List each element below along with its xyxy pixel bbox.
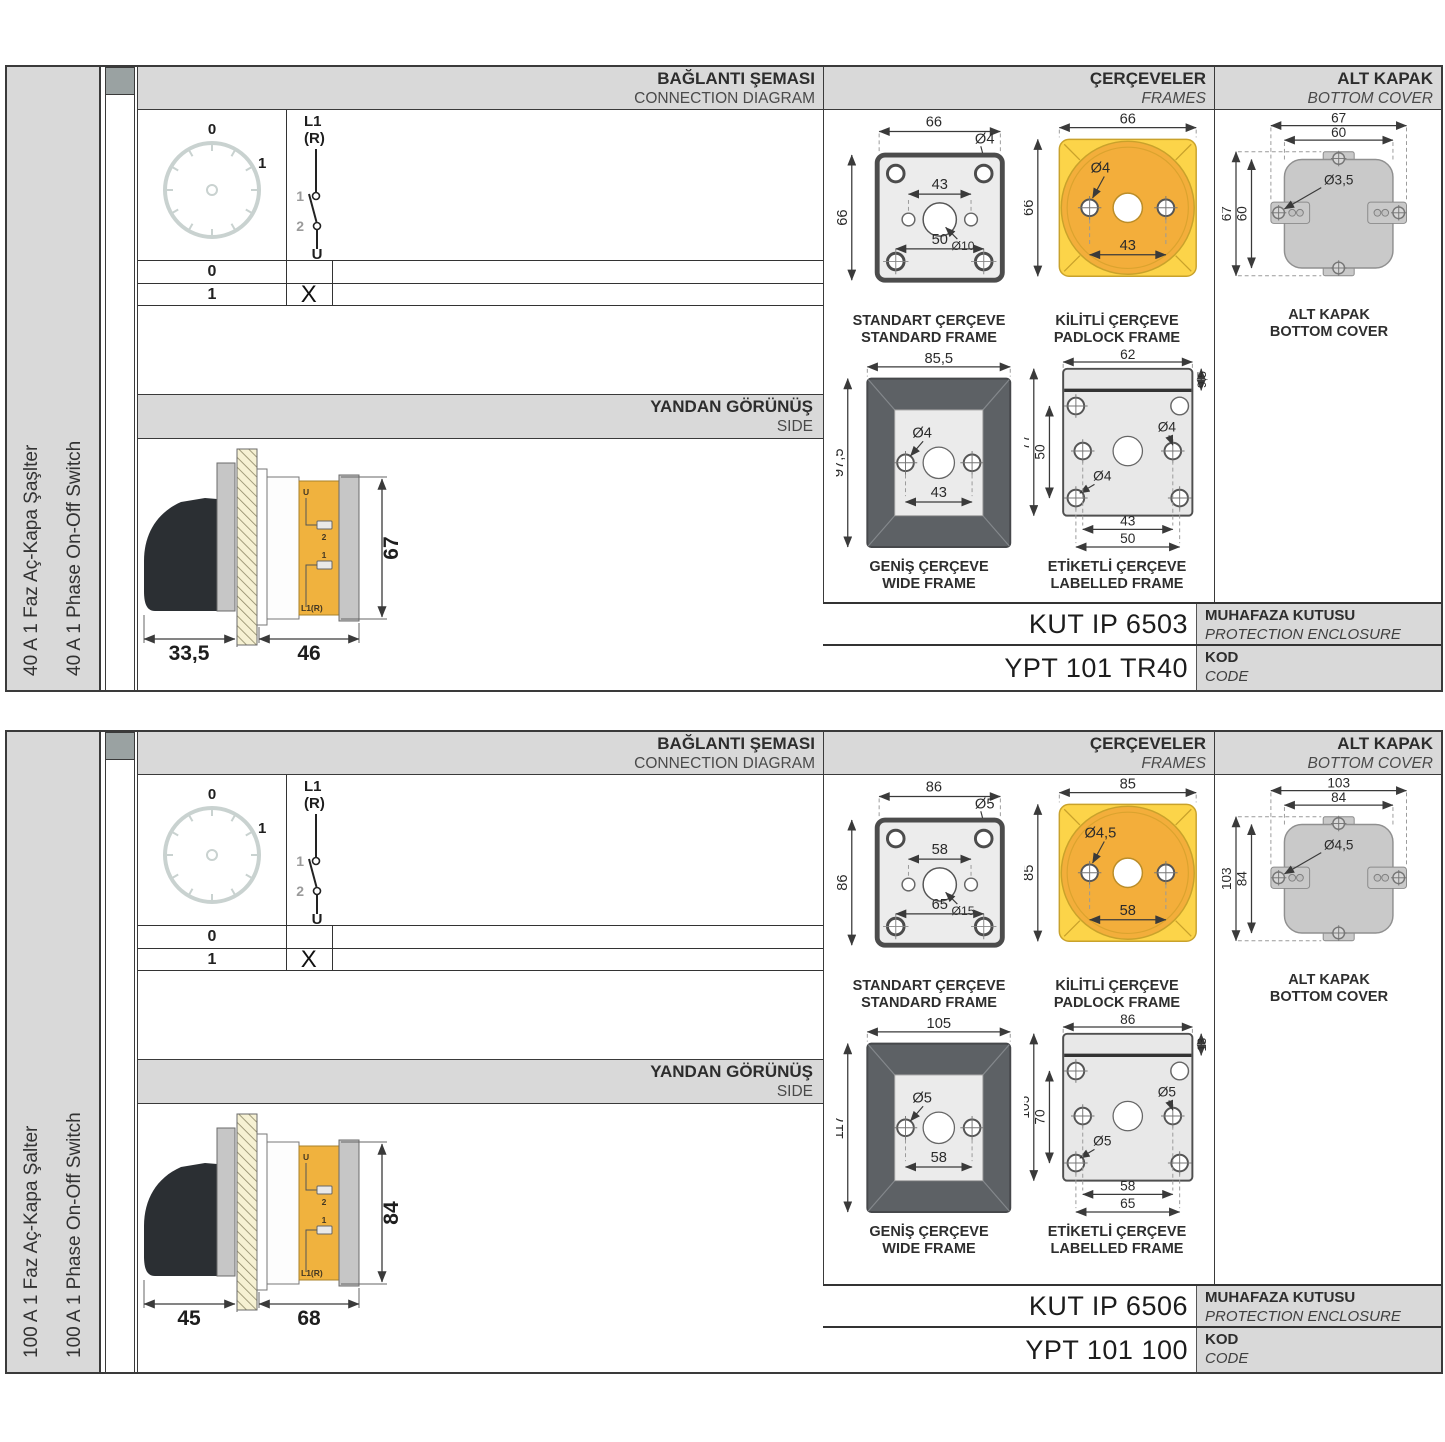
terminal-2: 2	[322, 1197, 327, 1207]
mounting-plate	[217, 1128, 235, 1276]
contact-2-label: 2	[296, 883, 304, 899]
dim-hole-spacing: 43	[931, 485, 947, 501]
dial-position-0: 0	[208, 121, 216, 138]
padlock-frame-caption: KİLİTLİ ÇERÇEVE PADLOCK FRAME	[1024, 313, 1210, 347]
dial-position-1: 1	[258, 155, 266, 172]
product-name-english: 40 A 1 Phase On-Off Switch	[53, 67, 97, 676]
terminal-lug-1	[317, 561, 332, 569]
panel-cross-section	[237, 1114, 257, 1310]
dim-height: 84	[380, 1201, 403, 1225]
header-bottom-cover: ALT KAPAK BOTTOM COVER	[1214, 67, 1441, 110]
position-mark: X	[286, 949, 333, 970]
switch-symbol: L1 (R) 1 2 U	[288, 775, 333, 925]
position-label: 1	[138, 284, 287, 305]
dim-depth-front: 33,5	[169, 642, 210, 663]
dim-height: 86	[836, 874, 851, 890]
position-mark	[286, 926, 333, 948]
dim-hole-spacing: 58	[1120, 903, 1136, 919]
position-row-0: 0	[138, 260, 823, 283]
dim-vertical-spacing: 70	[1033, 1109, 1048, 1125]
dim-corner-hole: Ø5	[975, 796, 995, 812]
dim-depth-rear: 46	[297, 642, 320, 663]
binder-tab	[105, 67, 135, 95]
dim-center-hole: Ø15	[951, 904, 974, 918]
dim-height: 105	[1024, 1095, 1032, 1118]
dim-hole-b: Ø5	[1093, 1133, 1112, 1148]
header-frames: ÇERÇEVELER FRAMES	[823, 67, 1214, 110]
product-label-cell: 100 A 1 Faz Aç-Kapa Şalter 100 A 1 Phase…	[7, 732, 101, 1372]
dim-vertical-spacing: 50	[1033, 444, 1048, 460]
terminal-block	[299, 1146, 339, 1280]
dim-height: 77	[1024, 435, 1032, 450]
header-frames: ÇERÇEVELER FRAMES	[823, 732, 1214, 775]
switch-symbol-cell: L1 (R) 1 2 U	[288, 110, 333, 260]
standard-frame-drawing: 86 Ø5 86 58 Ø15 65	[836, 777, 1022, 951]
terminal-lug-2	[317, 521, 332, 529]
product-code-label: KOD CODE	[1196, 1328, 1441, 1372]
dim-screw-hole: Ø4	[1091, 161, 1111, 177]
header-side-view: YANDAN GÖRÜNÜŞ SIDE	[138, 394, 823, 439]
terminal-lug-1	[317, 1226, 332, 1234]
side-view-drawing: U 2 1 L1(R) 67 33,5 46	[141, 441, 413, 663]
dim-width: 85	[1120, 777, 1136, 793]
body-step	[257, 469, 267, 625]
terminal-r-label: (R)	[304, 795, 325, 812]
dial-position-1: 1	[258, 820, 266, 837]
header-connection-diagram: BAĞLANTI ŞEMASI CONNECTION DIAGRAM	[138, 67, 823, 110]
column-divider-cover	[1214, 732, 1215, 1284]
dim-screw-hole: Ø4,5	[1084, 826, 1116, 842]
terminal-u-label: U	[311, 911, 322, 925]
binder-strip	[105, 67, 135, 690]
dim-label-strip: 13	[1195, 1038, 1209, 1052]
terminal-l1r: L1(R)	[301, 1268, 323, 1278]
dim-height: 66	[1024, 200, 1037, 216]
dial-position-0: 0	[208, 786, 216, 803]
wide-frame-drawing: 85,5 97,5 Ø4 43	[836, 353, 1022, 554]
standard-frame-caption: STANDART ÇERÇEVE STANDARD FRAME	[836, 978, 1022, 1012]
dim-screw-hole: Ø5	[912, 1090, 932, 1106]
enclosure-code-value: KUT IP 6503	[823, 604, 1196, 644]
product-name-turkish: 100 A 1 Faz Aç-Kapa Şalter	[11, 748, 53, 1358]
bottom-cover-drawing: 103 84 103 84 Ø4,5	[1222, 778, 1436, 964]
dim-center-hole: Ø10	[951, 239, 974, 253]
dim-screw-hole: Ø3,5	[1324, 173, 1353, 188]
dim-label-strip: 9,5	[1195, 371, 1209, 388]
wide-frame-caption: GENİŞ ÇERÇEVE WIDE FRAME	[836, 1224, 1022, 1258]
padlock-frame-drawing: 85 85 Ø4,5 58	[1024, 777, 1210, 951]
binder-strip	[105, 732, 135, 1372]
product-code-value: YPT 101 TR40	[823, 646, 1196, 690]
dim-hole-a: Ø5	[1158, 1084, 1177, 1099]
mounting-plate	[217, 463, 235, 611]
dim-hole-spacing: 43	[932, 177, 948, 193]
dim-screw-hole: Ø4,5	[1324, 838, 1353, 853]
bottom-cover-drawing: 67 60 67 60 Ø3,5	[1222, 113, 1436, 299]
switch-symbol-cell: L1 (R) 1 2 U	[288, 775, 333, 925]
contact-1-label: 1	[296, 853, 304, 869]
dim-inner-width: 84	[1331, 790, 1347, 805]
dim-height: 117	[836, 1116, 847, 1139]
labelled-frame-caption: ETİKETLİ ÇERÇEVE LABELLED FRAME	[1024, 559, 1210, 593]
dim-lower-spacing: 50	[932, 232, 948, 248]
labelled-frame-drawing: 86 13 105 70 Ø5 Ø5 58 65	[1024, 1014, 1210, 1222]
dial-diagram: 0 1	[138, 775, 286, 925]
terminal-u: U	[303, 487, 309, 497]
product-name-english: 100 A 1 Phase On-Off Switch	[53, 748, 97, 1358]
dim-lower-spacing: 65	[1120, 1196, 1136, 1211]
bottom-cover-caption: ALT KAPAK BOTTOM COVER	[1222, 307, 1436, 341]
dim-inner-height: 84	[1235, 871, 1250, 887]
terminal-u: U	[303, 1152, 309, 1162]
wide-frame-caption: GENİŞ ÇERÇEVE WIDE FRAME	[836, 559, 1022, 593]
dim-hole-spacing: 43	[1120, 513, 1136, 528]
vertical-labels: 100 A 1 Faz Aç-Kapa Şalter 100 A 1 Phase…	[11, 748, 99, 1372]
position-label: 1	[138, 949, 287, 970]
position-mark	[286, 261, 333, 283]
dim-hole-spacing: 58	[932, 842, 948, 858]
wide-frame-drawing: 105 117 Ø5 58	[836, 1018, 1022, 1219]
product-label-cell: 40 A 1 Faz Aç-Kapa Şaşlter 40 A 1 Phase …	[7, 67, 101, 690]
position-row-1: 1 X	[138, 948, 823, 971]
terminal-u-label: U	[311, 246, 322, 260]
dim-screw-hole: Ø4	[912, 425, 932, 441]
enclosure-code-value: KUT IP 6506	[823, 1286, 1196, 1326]
dim-inner-height: 60	[1235, 206, 1250, 221]
vertical-labels: 40 A 1 Faz Aç-Kapa Şaşlter 40 A 1 Phase …	[11, 67, 99, 690]
dim-width: 86	[926, 780, 942, 796]
standard-frame-caption: STANDART ÇERÇEVE STANDARD FRAME	[836, 313, 1022, 347]
dim-outer-width: 67	[1331, 113, 1346, 126]
dim-lower-spacing: 65	[932, 897, 948, 913]
position-mark: X	[286, 284, 333, 305]
enclosure-code-label: MUHAFAZA KUTUSU PROTECTION ENCLOSURE	[1196, 1286, 1441, 1326]
product-panel: 100 A 1 Faz Aç-Kapa Şalter 100 A 1 Phase…	[5, 730, 1443, 1374]
panel-main: BAĞLANTI ŞEMASI CONNECTION DIAGRAM ÇERÇE…	[137, 67, 1441, 690]
end-cap	[339, 1140, 359, 1286]
side-view-drawing: U 2 1 L1(R) 84 45 68	[141, 1106, 413, 1328]
dim-height: 97,5	[836, 449, 847, 478]
dim-hole-spacing: 58	[931, 1150, 947, 1166]
switch-body	[267, 477, 299, 619]
standard-frame-drawing: 66 Ø4 66 43 Ø10 50	[836, 112, 1022, 286]
labelled-frame-drawing: 62 9,5 77 50 Ø4 Ø4 43 50	[1024, 349, 1210, 557]
dim-width: 85,5	[925, 353, 954, 367]
product-code-value: YPT 101 100	[823, 1328, 1196, 1372]
body-step	[257, 1134, 267, 1290]
column-divider-cover	[1214, 67, 1215, 602]
header-side-view: YANDAN GÖRÜNÜŞ SIDE	[138, 1059, 823, 1104]
switch-dial-cell: 0 1	[138, 110, 287, 260]
dim-height: 67	[380, 536, 403, 559]
position-label: 0	[138, 926, 287, 948]
dim-depth-rear: 68	[297, 1307, 321, 1328]
dial-diagram: 0 1	[138, 110, 286, 260]
panel-cross-section	[237, 449, 257, 645]
dim-width: 105	[927, 1018, 951, 1032]
contact-1-label: 1	[296, 188, 304, 204]
product-panel: 40 A 1 Faz Aç-Kapa Şaşlter 40 A 1 Phase …	[5, 65, 1443, 692]
position-row-0: 0	[138, 925, 823, 948]
terminal-l1-label: L1	[304, 778, 322, 795]
switch-body	[267, 1142, 299, 1284]
terminal-2: 2	[322, 532, 327, 542]
catalog-page: 40 A 1 Faz Aç-Kapa Şaşlter 40 A 1 Phase …	[0, 0, 1445, 1442]
padlock-frame-caption: KİLİTLİ ÇERÇEVE PADLOCK FRAME	[1024, 978, 1210, 1012]
position-label: 0	[138, 261, 287, 283]
dim-width: 86	[1120, 1014, 1136, 1027]
product-code-label: KOD CODE	[1196, 646, 1441, 690]
dim-corner-hole: Ø4	[975, 131, 995, 147]
dim-depth-front: 45	[177, 1307, 201, 1328]
enclosure-code-row: KUT IP 6506 MUHAFAZA KUTUSU PROTECTION E…	[823, 1284, 1441, 1326]
column-divider-frames	[823, 67, 824, 690]
switch-handle	[144, 498, 217, 611]
terminal-l1r: L1(R)	[301, 603, 323, 613]
dim-width: 66	[926, 115, 942, 131]
labelled-frame-caption: ETİKETLİ ÇERÇEVE LABELLED FRAME	[1024, 1224, 1210, 1258]
end-cap	[339, 475, 359, 621]
panel-main: BAĞLANTI ŞEMASI CONNECTION DIAGRAM ÇERÇE…	[137, 732, 1441, 1372]
position-row-1: 1 X	[138, 283, 823, 306]
column-divider-frames	[823, 732, 824, 1372]
switch-dial-cell: 0 1	[138, 775, 287, 925]
dim-height: 85	[1024, 865, 1037, 881]
contact-2-label: 2	[296, 218, 304, 234]
product-code-row: YPT 101 TR40 KOD CODE	[823, 644, 1441, 690]
dim-outer-height: 67	[1222, 206, 1234, 221]
padlock-frame-drawing: 66 66 Ø4 43	[1024, 112, 1210, 286]
dim-lower-spacing: 50	[1120, 531, 1136, 546]
terminal-1: 1	[322, 550, 327, 560]
product-code-row: YPT 101 100 KOD CODE	[823, 1326, 1441, 1372]
switch-symbol: L1 (R) 1 2 U	[288, 110, 333, 260]
bottom-cover-caption: ALT KAPAK BOTTOM COVER	[1222, 972, 1436, 1006]
dim-hole-spacing: 58	[1120, 1178, 1136, 1193]
dim-height: 66	[836, 209, 851, 225]
binder-tab	[105, 732, 135, 760]
dim-width: 66	[1120, 112, 1136, 128]
product-name-turkish: 40 A 1 Faz Aç-Kapa Şaşlter	[11, 67, 53, 676]
dim-inner-width: 60	[1331, 125, 1346, 140]
dim-outer-width: 103	[1327, 778, 1350, 791]
terminal-block	[299, 481, 339, 615]
terminal-1: 1	[322, 1215, 327, 1225]
dim-hole-a: Ø4	[1158, 419, 1177, 434]
dim-width: 62	[1120, 349, 1135, 362]
switch-handle	[144, 1163, 217, 1276]
header-connection-diagram: BAĞLANTI ŞEMASI CONNECTION DIAGRAM	[138, 732, 823, 775]
terminal-r-label: (R)	[304, 130, 325, 147]
dim-hole-spacing: 43	[1120, 238, 1136, 254]
enclosure-code-label: MUHAFAZA KUTUSU PROTECTION ENCLOSURE	[1196, 604, 1441, 644]
terminal-l1-label: L1	[304, 113, 322, 130]
header-bottom-cover: ALT KAPAK BOTTOM COVER	[1214, 732, 1441, 775]
dim-hole-b: Ø4	[1093, 468, 1112, 483]
enclosure-code-row: KUT IP 6503 MUHAFAZA KUTUSU PROTECTION E…	[823, 602, 1441, 644]
terminal-lug-2	[317, 1186, 332, 1194]
dim-outer-height: 103	[1222, 867, 1234, 890]
